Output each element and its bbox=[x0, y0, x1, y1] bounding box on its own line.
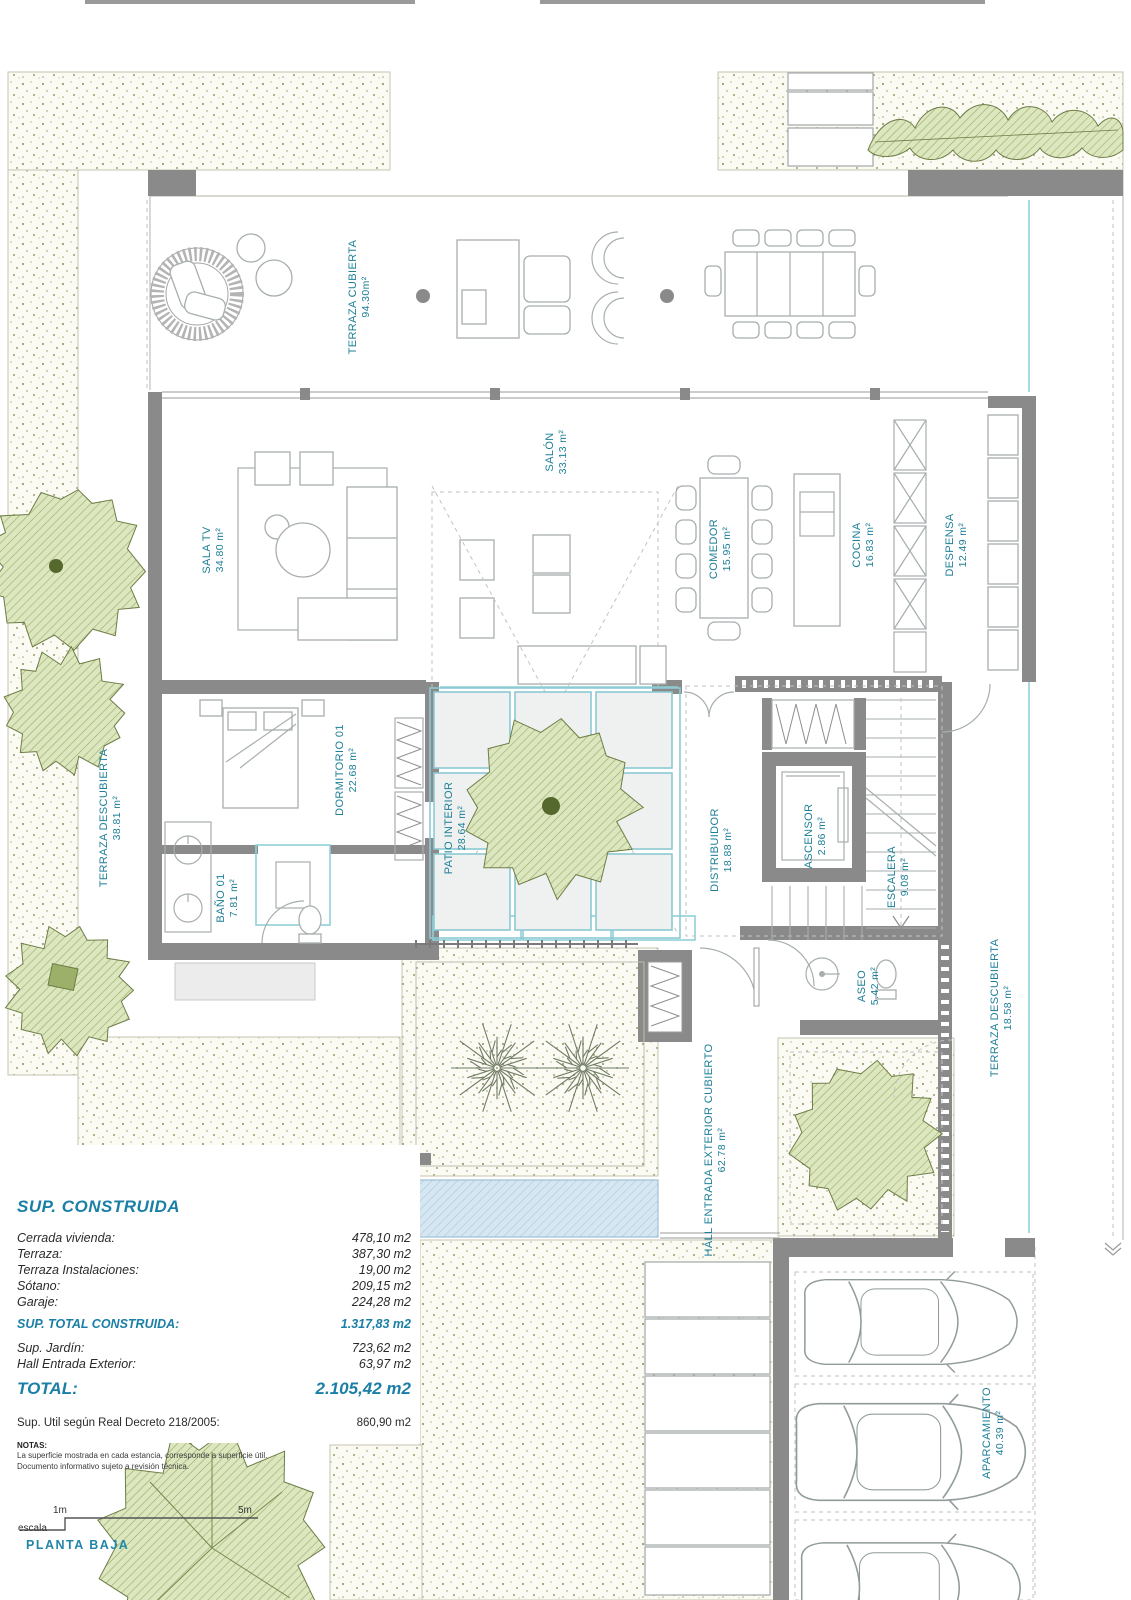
water-feature bbox=[402, 1180, 658, 1237]
garden-steps-top bbox=[788, 73, 873, 166]
top-border-right bbox=[540, 0, 985, 4]
nota-line-1: La superficie mostrada en cada estancia,… bbox=[17, 1451, 267, 1460]
garage-steps bbox=[645, 1262, 770, 1595]
floorplan-page: TERRAZA CUBIERTA94.30m² SALA TV34.80 m² … bbox=[0, 0, 1131, 1600]
label-aseo: ASEO5.42 m² bbox=[855, 967, 883, 1005]
label-cocina: COCINA16.83 m² bbox=[850, 522, 878, 567]
summary-heading: SUP. CONSTRUIDA bbox=[17, 1197, 180, 1217]
label-distribuidor: DISTRIBUIDOR18.88 m² bbox=[708, 808, 736, 892]
label-sala-tv: SALA TV34.80 m² bbox=[200, 526, 228, 573]
facade-windows bbox=[162, 388, 988, 400]
label-hall-entrada: HALL ENTRADA EXTERIOR CUBIERTO62.78 m² bbox=[702, 1044, 730, 1257]
label-aparcamiento: APARCAMIENTO40.39 m² bbox=[980, 1387, 1008, 1479]
scale-1m-label: 1m bbox=[53, 1505, 67, 1516]
label-bano-01: BAÑO 017.81 m² bbox=[214, 873, 242, 922]
sala-tv-furniture bbox=[238, 452, 397, 640]
notas-heading: NOTAS: bbox=[17, 1441, 47, 1450]
nota-line-2: Documento informativo sujeto a revisión … bbox=[17, 1462, 189, 1471]
bottom-left-tree bbox=[98, 1418, 325, 1600]
top-border-left bbox=[85, 0, 415, 4]
label-terraza-cubierta: TERRAZA CUBIERTA94.30m² bbox=[346, 240, 374, 355]
scale-5m-label: 5m bbox=[238, 1505, 252, 1516]
label-patio-interior: PATIO INTERIOR28.64 m² bbox=[442, 782, 470, 875]
label-terraza-descubierta-oeste: TERRAZA DESCUBIERTA38.81 m² bbox=[97, 749, 125, 888]
terrace-furniture bbox=[151, 230, 875, 344]
plan-name: PLANTA BAJA bbox=[26, 1538, 129, 1552]
label-despensa: DESPENSA12.49 m² bbox=[943, 513, 971, 576]
surface-summary-table: SUP. CONSTRUIDA Cerrada vivienda:478,10 … bbox=[8, 1145, 420, 1443]
label-dormitorio-01: DORMITORIO 0122.68 m² bbox=[333, 724, 361, 816]
label-escalera: ESCALERA9.08 m² bbox=[885, 846, 913, 908]
label-terraza-descubierta-este: TERRAZA DESCUBIERTA18.58 m² bbox=[988, 939, 1016, 1078]
label-salon: SALÓN33.13 m² bbox=[543, 430, 571, 475]
scale-label: escala bbox=[18, 1523, 47, 1534]
label-ascensor: ASCENSOR2.86 m² bbox=[802, 804, 830, 869]
label-comedor: COMEDOR15.95 m² bbox=[707, 519, 735, 579]
